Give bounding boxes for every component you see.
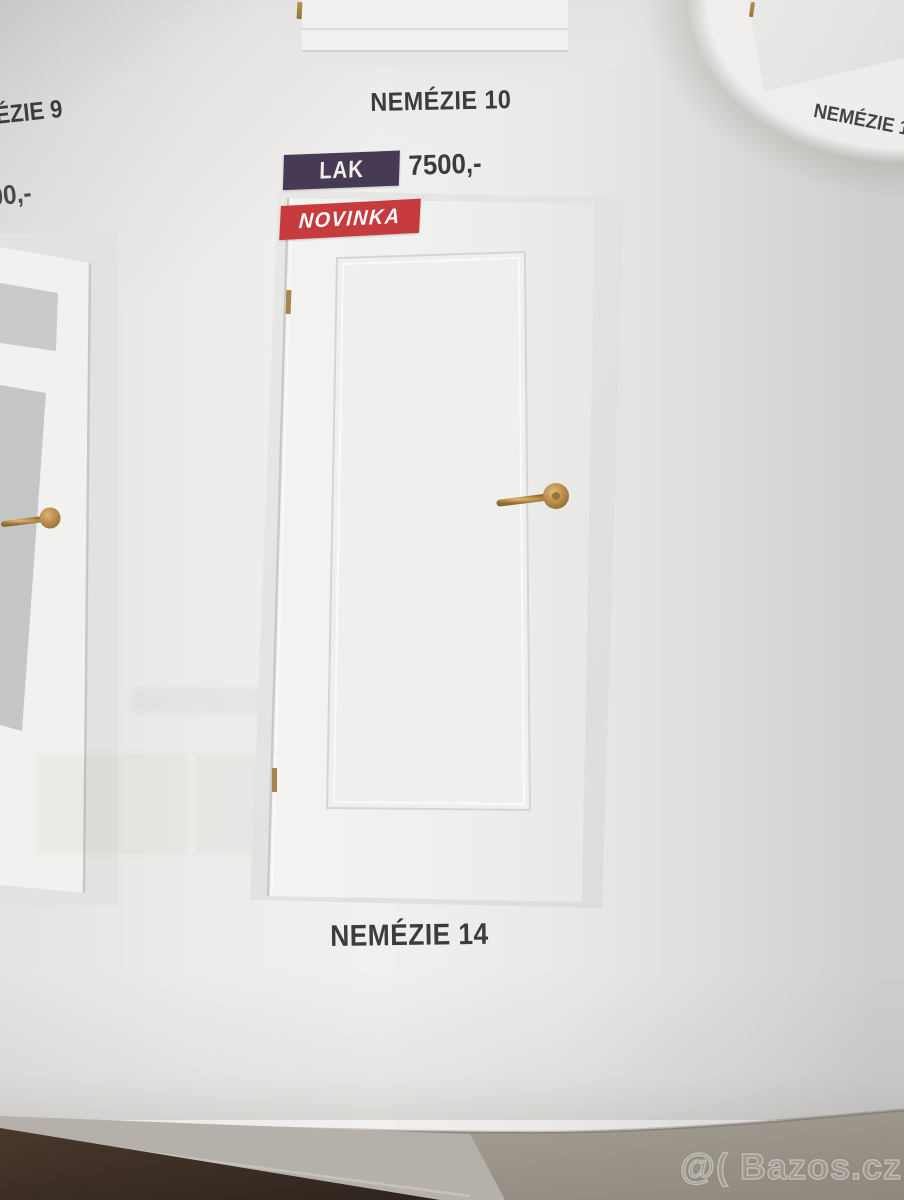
door-image-bottom <box>302 0 568 52</box>
caption-nemezie-10: NEMÉZIE 10 <box>370 84 512 118</box>
novinka-badge-label: NOVINKA <box>298 205 401 234</box>
page-showthrough <box>36 754 186 854</box>
door-hinge <box>286 290 292 314</box>
price-main: 7500,- <box>408 147 482 182</box>
lak-finish-badge: LAK <box>283 151 400 191</box>
door-panel <box>327 252 530 810</box>
price-left-partial: 00,- <box>0 178 33 213</box>
product-photo-main <box>250 190 626 908</box>
door-panel-edge <box>302 28 568 30</box>
glass-pane-top <box>0 283 58 351</box>
caption-nemezie-14: NEMÉZIE 14 <box>330 918 489 954</box>
product-photo-top-center <box>276 0 624 66</box>
door-image-bottom <box>734 0 904 92</box>
door-image-main <box>250 190 626 908</box>
lak-badge-label: LAK <box>319 155 364 185</box>
door-hinge <box>297 2 303 19</box>
catalog-photo: ÉZIE 9 00,- NEMÉZIE 10 NEMÉZIE 1 LAK 750… <box>0 0 904 1200</box>
door-handle-rosette <box>40 508 61 529</box>
product-photo-top-right <box>734 0 904 92</box>
door-handle-hub <box>552 492 560 500</box>
bazos-watermark: @( Bazos.cz <box>680 1146 902 1188</box>
door-hinge <box>272 768 277 792</box>
